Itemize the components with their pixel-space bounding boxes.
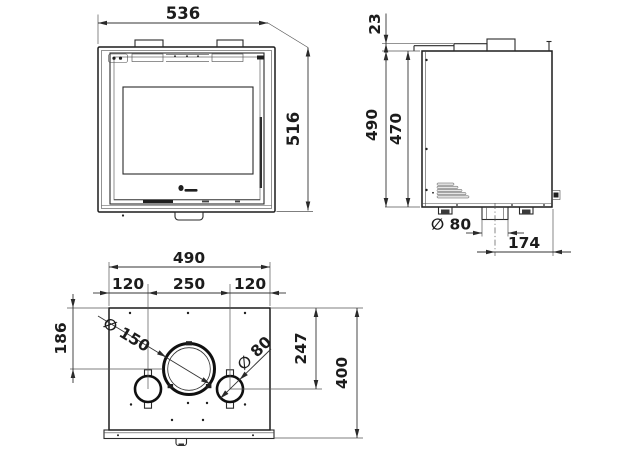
dim-label-front-height: 516 (284, 112, 303, 146)
screw-dot (119, 57, 122, 60)
door-handle (143, 200, 173, 203)
dim-label-top-air-diameter: ∅ 80 (234, 333, 276, 374)
flue-collar-150 (164, 341, 215, 394)
rating-plate (432, 183, 469, 198)
side-dimensions: 23 490 470 ∅ 80 174 (363, 13, 571, 256)
side-rear-bracket (552, 191, 560, 200)
dim-label-side-collar: 23 (366, 13, 384, 35)
front-door (110, 53, 264, 204)
screw-dot (112, 57, 115, 60)
drawing-svg: 536 516 (0, 0, 624, 460)
front-dimensions: 536 516 (98, 4, 313, 212)
dim-label-side-overall-height: 490 (363, 109, 381, 142)
dim-label-top-width: 490 (173, 249, 206, 267)
dim-label-top-seg-center: 250 (173, 275, 206, 293)
side-top-collar (414, 39, 552, 51)
dim-label-top-flue-depth: 186 (52, 322, 70, 354)
latch-mark (257, 56, 264, 60)
dim-label-top-depth: 400 (333, 357, 351, 390)
dim-label-top-air-depth: 247 (292, 332, 310, 364)
side-view: 23 490 470 ∅ 80 174 (363, 13, 571, 256)
screw-holes (129, 312, 246, 421)
front-top-tab-left (135, 40, 163, 47)
front-door-inner-line (114, 57, 260, 200)
technical-drawing-canvas: 536 516 (0, 0, 624, 460)
front-frame-inner-line (102, 51, 272, 209)
dim-label-front-width: 536 (166, 4, 200, 23)
dim-label-side-body-height: 470 (387, 113, 405, 146)
front-outer-frame (98, 47, 275, 212)
front-top-vent-strip (109, 54, 265, 63)
dim-label-top-flue-diameter: ∅ 150 (100, 314, 153, 356)
front-bottom-tab (175, 212, 203, 220)
dim-label-top-seg-left: 120 (112, 275, 145, 293)
dim-label-top-seg-right: 120 (234, 275, 267, 293)
dim-label-side-outlet-offset: 174 (508, 234, 541, 252)
top-view: 490 120 250 120 186 247 400 (52, 249, 363, 446)
front-view: 536 516 (98, 4, 313, 220)
dim-label-side-outlet-diameter: ∅ 80 (431, 216, 471, 234)
screw-dot (122, 214, 124, 216)
side-feet (439, 207, 534, 214)
top-front-flange (104, 430, 274, 439)
front-glass-window (123, 87, 253, 174)
top-dimensions: 490 120 250 120 186 247 400 (52, 249, 363, 438)
brand-logo (178, 185, 197, 192)
front-top-tab-right (217, 40, 243, 47)
